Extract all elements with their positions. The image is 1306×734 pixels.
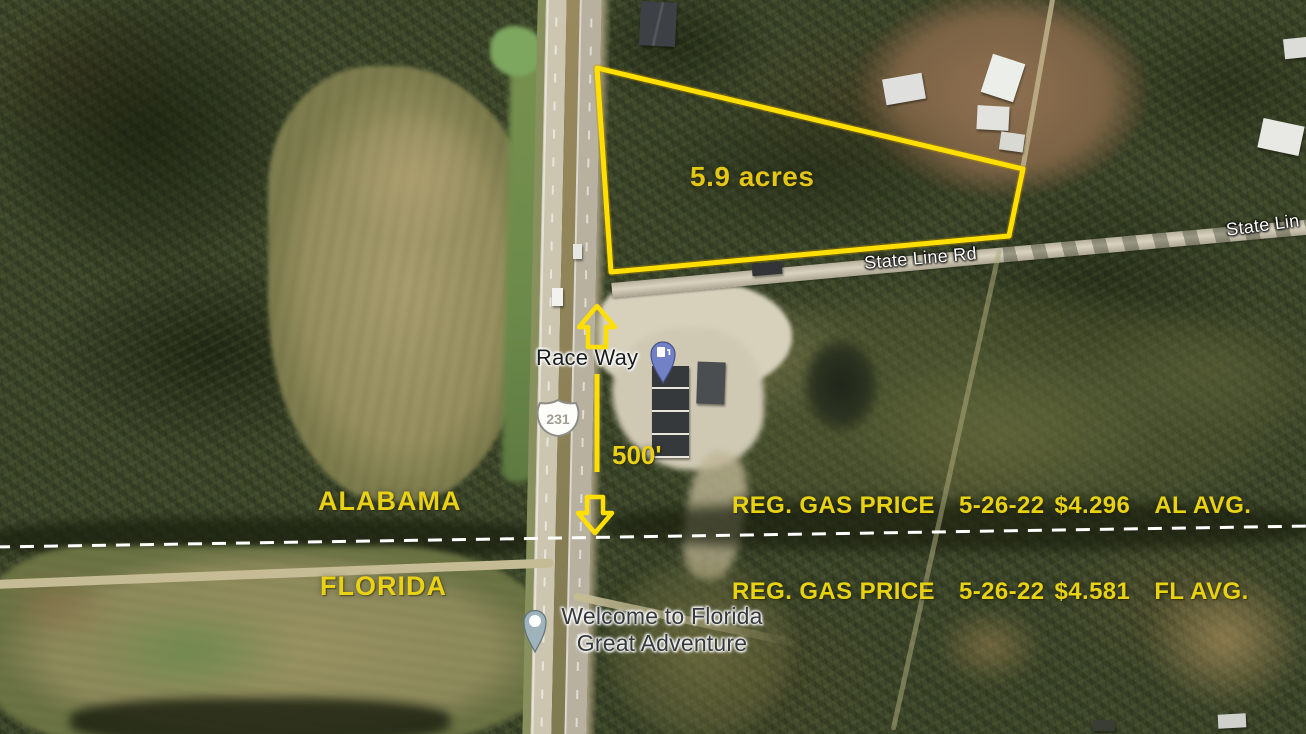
gas-price-amount: $4.296 xyxy=(1055,492,1131,520)
field-west-highlight xyxy=(320,92,510,262)
welcome-sign-poi-label: Welcome to Florida Great Adventure xyxy=(558,603,766,657)
trailer-home xyxy=(1283,37,1306,60)
gas-station-pin xyxy=(648,338,678,384)
trailer-home xyxy=(999,131,1025,152)
trailer-home xyxy=(976,105,1009,131)
welcome-sign-pin xyxy=(521,606,549,654)
vehicle-on-highway xyxy=(573,244,582,259)
gas-price-row-florida: REG. GAS PRICE 5-26-22 $4.581 FL AVG. xyxy=(732,578,1249,606)
shed-southeast xyxy=(1093,720,1115,731)
raceway-poi-label: Race Way xyxy=(536,345,638,371)
shed-southeast xyxy=(1218,713,1247,728)
gas-price-value-group: 5-26-22 $4.296 xyxy=(959,492,1130,520)
treeline-southwest xyxy=(70,698,450,734)
distance-label: 500' xyxy=(612,440,662,471)
gas-pump-icon xyxy=(657,347,665,357)
house-top-center xyxy=(639,1,677,47)
gas-price-value-group: 5-26-22 $4.581 xyxy=(959,578,1130,606)
gas-price-label: REG. GAS PRICE xyxy=(732,578,935,606)
state-label-alabama: ALABAMA xyxy=(318,486,461,517)
place-pin-dot-icon xyxy=(529,615,541,627)
welcome-sign-line2: Great Adventure xyxy=(558,630,766,657)
tan-patch-south xyxy=(925,598,1055,694)
vehicle-on-highway xyxy=(552,288,563,306)
gas-price-label: REG. GAS PRICE xyxy=(732,492,935,520)
us-231-route-shield: 231 xyxy=(534,398,582,438)
field-florida-brown-patch xyxy=(0,556,122,652)
shield-number: 231 xyxy=(546,411,570,427)
parcel-acreage-label: 5.9 acres xyxy=(690,161,814,193)
gas-price-region: AL AVG. xyxy=(1154,492,1251,520)
gas-price-date: 5-26-22 xyxy=(959,578,1045,606)
raceway-store-building xyxy=(696,362,725,405)
satellite-map-canvas: State Line Rd State Lin Race Way Welcome… xyxy=(0,0,1306,734)
state-label-florida: FLORIDA xyxy=(320,571,447,602)
gas-price-date: 5-26-22 xyxy=(959,492,1045,520)
gas-price-region: FL AVG. xyxy=(1154,578,1248,606)
gas-price-amount: $4.581 xyxy=(1055,578,1131,606)
gas-price-row-alabama: REG. GAS PRICE 5-26-22 $4.296 AL AVG. xyxy=(732,492,1251,520)
welcome-sign-line1: Welcome to Florida xyxy=(558,603,766,630)
forest-northwest xyxy=(0,0,310,280)
